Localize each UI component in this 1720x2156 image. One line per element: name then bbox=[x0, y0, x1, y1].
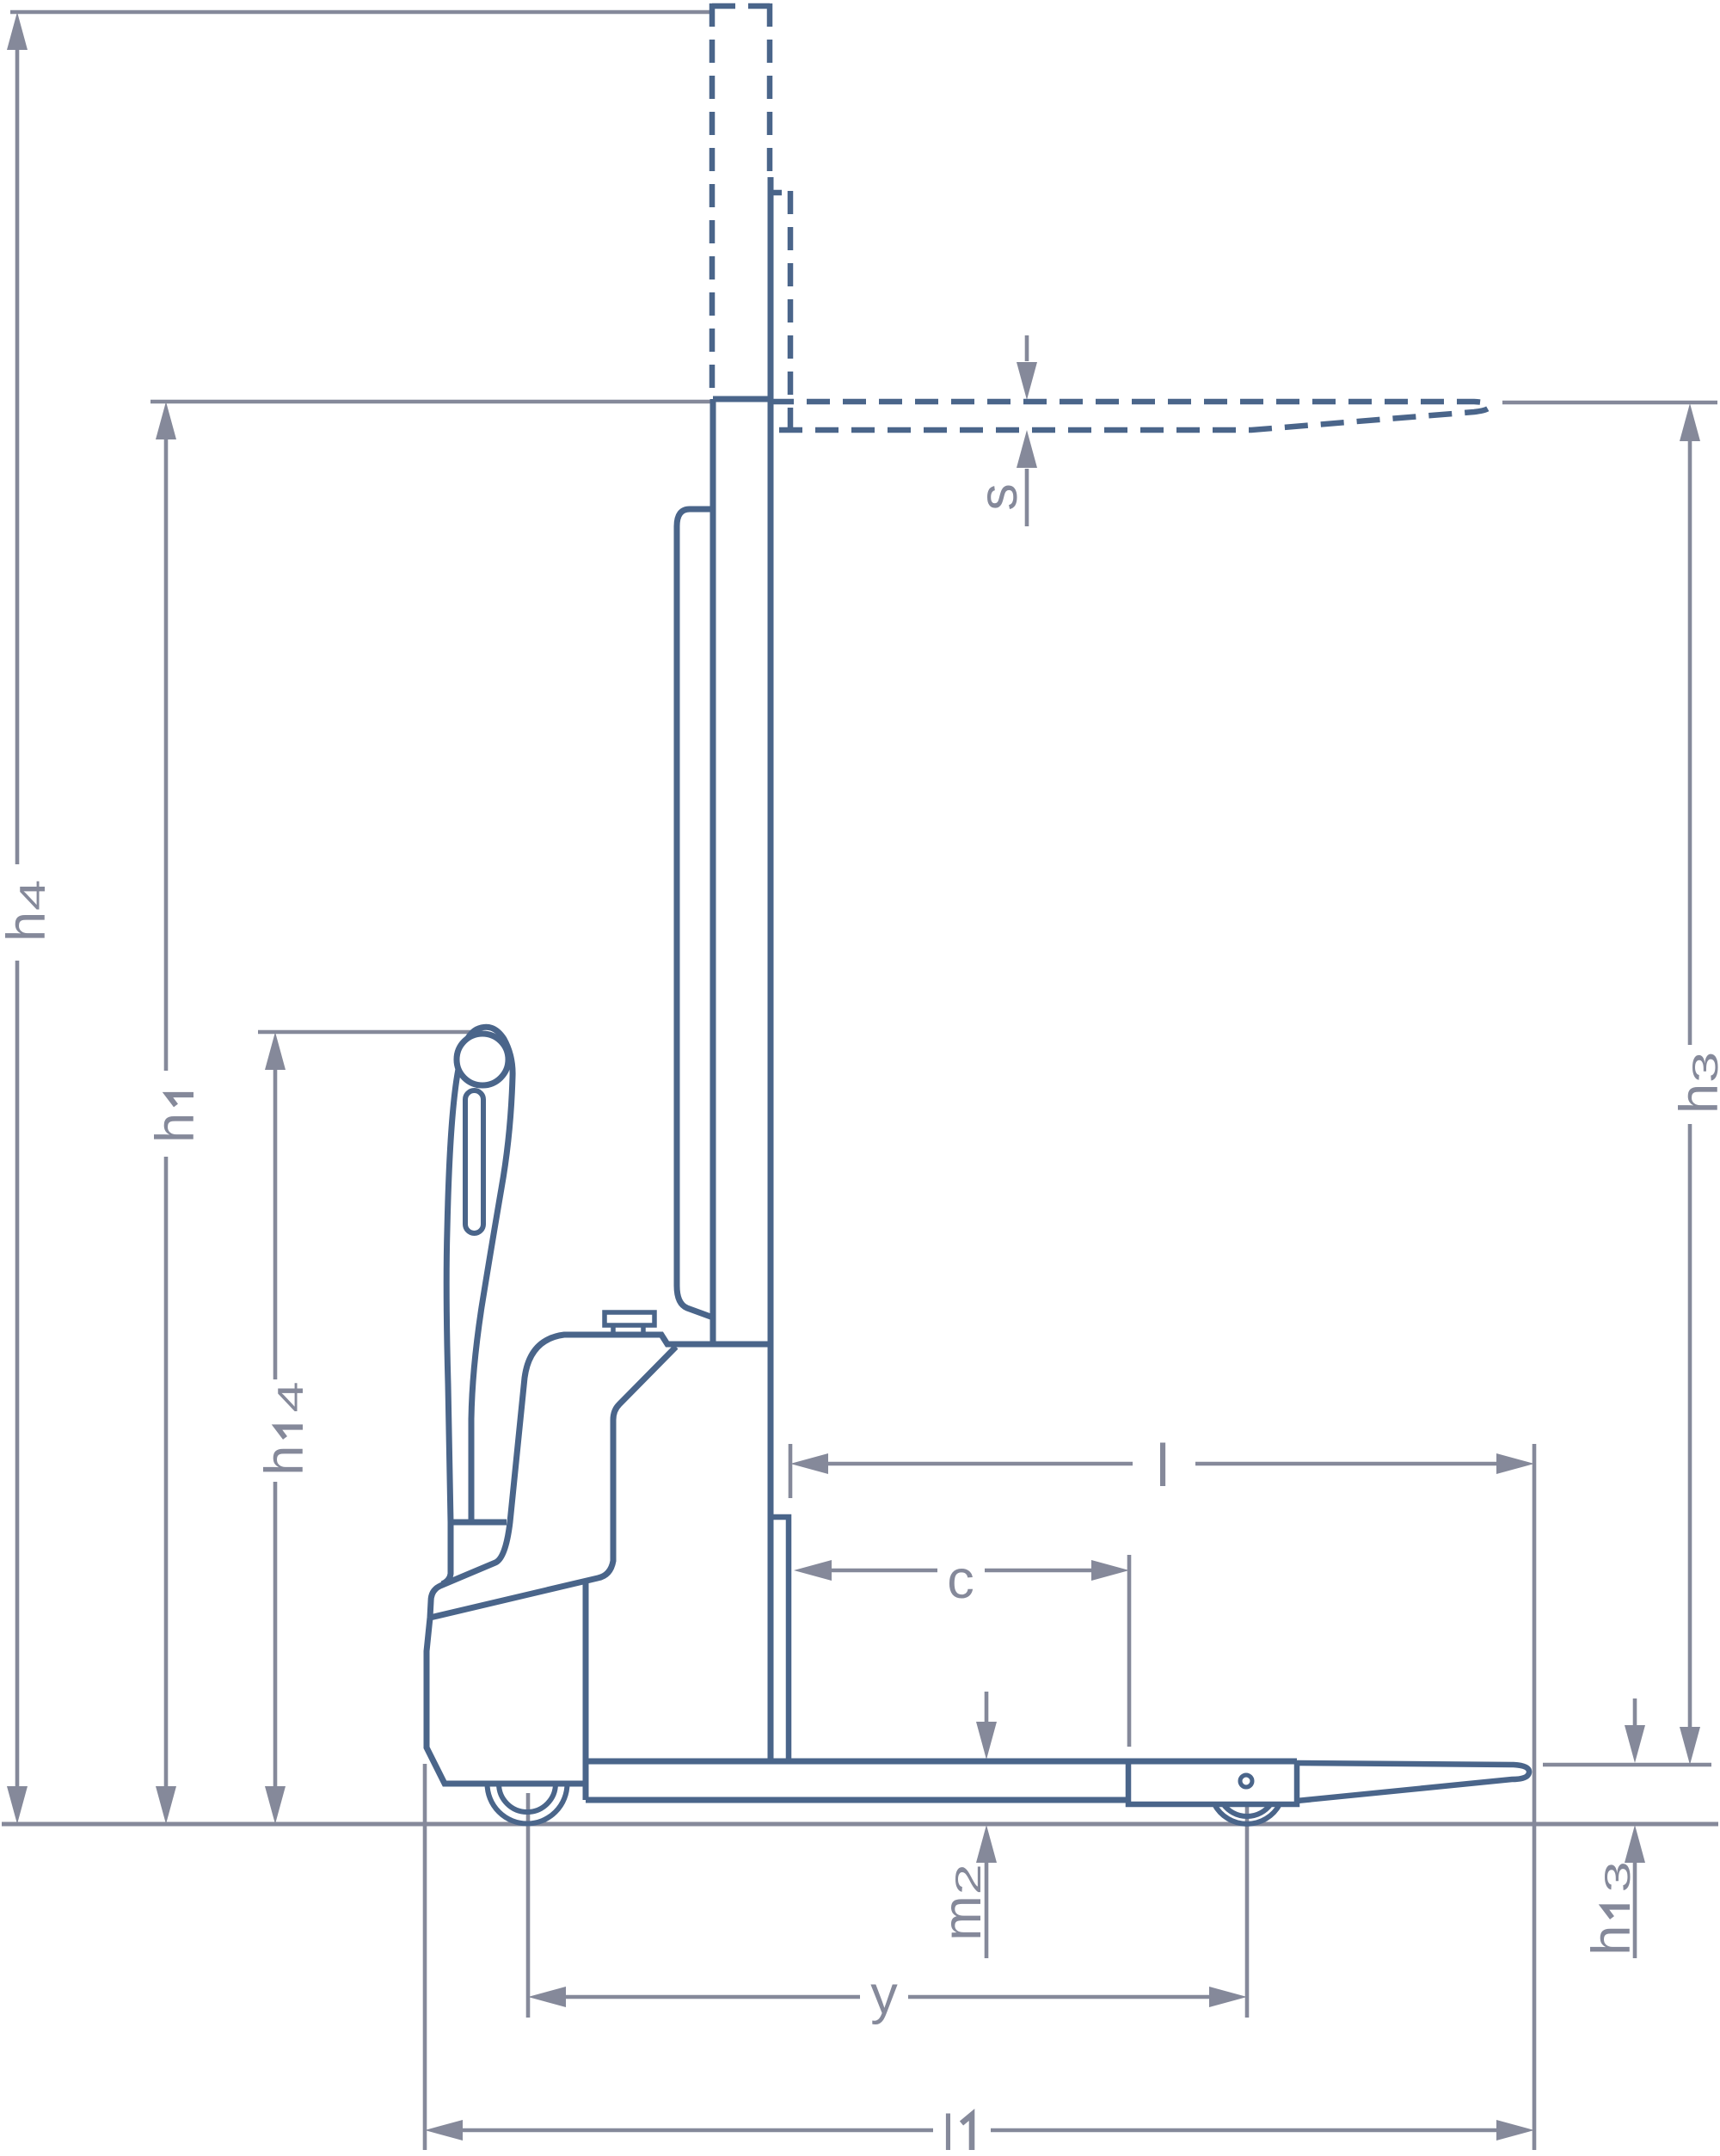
svg-text:h: h bbox=[1582, 1926, 1642, 1956]
svg-text:l: l bbox=[1156, 1432, 1170, 1499]
svg-text:4: 4 bbox=[270, 1381, 311, 1412]
svg-text:h: h bbox=[0, 912, 57, 942]
svg-text:3: 3 bbox=[1597, 1861, 1638, 1892]
svg-text:h: h bbox=[255, 1446, 315, 1476]
svg-text:3: 3 bbox=[1685, 1052, 1720, 1083]
svg-text:h: h bbox=[145, 1113, 206, 1143]
svg-text:c: c bbox=[947, 1550, 974, 1610]
svg-text:y: y bbox=[870, 1965, 898, 2025]
svg-text:s: s bbox=[968, 483, 1029, 511]
svg-text:2: 2 bbox=[948, 1864, 989, 1895]
svg-text:m: m bbox=[932, 1895, 992, 1940]
svg-text:l: l bbox=[943, 2105, 954, 2156]
svg-text:4: 4 bbox=[12, 880, 53, 911]
svg-text:h: h bbox=[1669, 1084, 1720, 1114]
